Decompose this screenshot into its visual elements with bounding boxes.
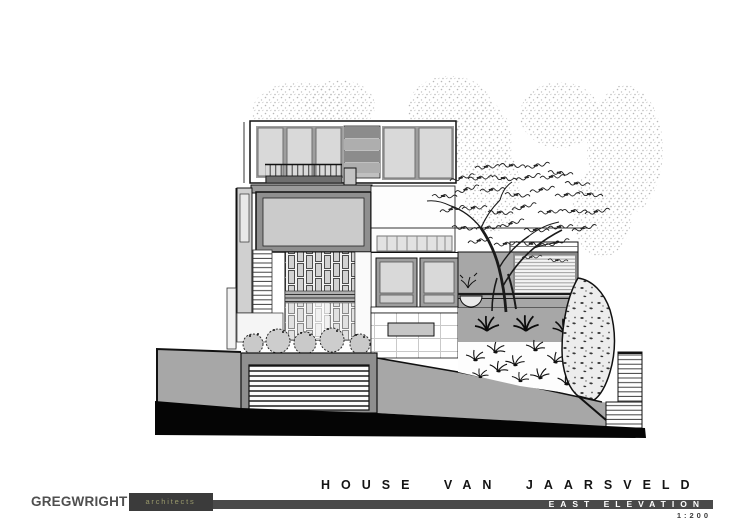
elevation-drawing <box>0 0 750 530</box>
firm-name: GREGWRIGHT <box>31 494 128 509</box>
louvre-screen <box>514 254 576 298</box>
brick-screen <box>285 252 371 340</box>
garden-wall <box>458 242 578 308</box>
top-floor-glazing-right <box>382 126 454 180</box>
drawing-sheet: HOUSE VAN JAARSVELD EAST ELEVATION 1:200… <box>0 0 750 530</box>
garage <box>241 353 377 413</box>
firm-logo-block: architects <box>129 493 213 511</box>
firm-suffix: architects <box>145 497 195 506</box>
recessed-panel <box>388 323 434 336</box>
window-b <box>420 258 458 307</box>
drawing-title: EAST ELEVATION <box>549 500 713 509</box>
aloe-band <box>458 308 578 342</box>
small-window-strip <box>377 236 452 251</box>
tiled-wall <box>371 313 458 358</box>
drawing-scale: 1:200 <box>677 511 711 520</box>
firm-logo: GREGWRIGHT architects <box>31 492 213 511</box>
project-title: HOUSE VAN JAARSVELD <box>321 478 701 492</box>
garage-door <box>249 365 369 410</box>
balcony-planter <box>266 176 342 183</box>
top-floor <box>244 121 456 186</box>
mid-floor-panel <box>256 192 371 252</box>
title-bar: EAST ELEVATION <box>181 500 713 509</box>
window-a <box>376 258 417 307</box>
casement-windows <box>371 258 458 313</box>
